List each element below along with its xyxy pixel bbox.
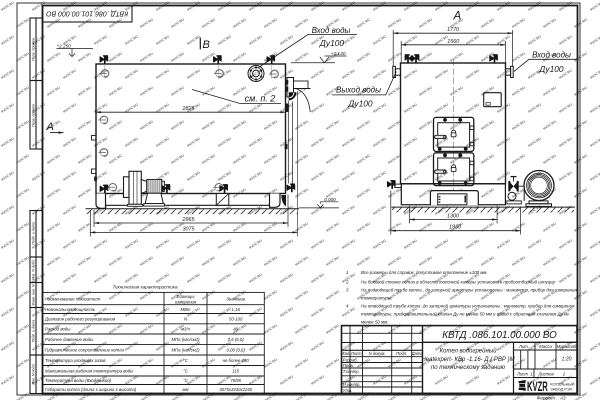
svg-text:КВТД .086.101.00.000 ВО: КВТД .086.101.00.000 ВО	[46, 10, 128, 19]
svg-text:по техническому заданию: по техническому заданию	[431, 365, 506, 371]
svg-text:1: 1	[530, 371, 532, 376]
svg-text:Подп.: Подп.	[396, 351, 407, 356]
svg-text:1930: 1930	[449, 225, 461, 231]
svg-text:70/95: 70/95	[230, 378, 241, 383]
svg-text:Ду100: Ду100	[319, 38, 344, 48]
svg-text:Листов: Листов	[537, 371, 554, 376]
svg-text:МВт: МВт	[180, 307, 190, 312]
svg-text:Формат: Формат	[537, 395, 555, 400]
svg-text:KVZR: KVZR	[527, 379, 548, 394]
svg-text:0,6 (6,0): 0,6 (6,0)	[228, 337, 245, 342]
svg-text:Дата: Дата	[411, 351, 424, 356]
svg-text:Лист: Лист	[516, 371, 528, 376]
svg-text:Пров.: Пров.	[343, 363, 354, 368]
svg-text:Расход воды: Расход воды	[45, 327, 71, 332]
svg-text:50-100: 50-100	[229, 316, 243, 321]
svg-text:2965: 2965	[182, 217, 196, 223]
svg-text:Ду100: Ду100	[347, 99, 372, 109]
svg-text:температуры.: температуры.	[361, 296, 392, 301]
svg-text:А: А	[46, 121, 54, 133]
svg-text:+2.130: +2.130	[331, 51, 346, 57]
svg-text:0.000: 0.000	[324, 197, 336, 202]
svg-text:КВТД .086.101.00.000 ВО: КВТД .086.101.00.000 ВО	[442, 330, 557, 341]
svg-text:На боковой стенке котла в обла: На боковой стенке котла в области топочн…	[361, 280, 556, 285]
svg-text:не более 250: не более 250	[223, 358, 250, 363]
svg-text:Утв.: Утв.	[343, 388, 353, 393]
svg-text:Масштаб: Масштаб	[557, 344, 577, 349]
svg-text:Heatexpert- КВр -1,16- Д ( РВР: Heatexpert- КВр -1,16- Д ( РВР )М	[421, 357, 514, 363]
svg-text:Все размеры для справок, допус: Все размеры для справок, допустимое откл…	[361, 270, 488, 275]
svg-text:менее 50 мм.: менее 50 мм.	[361, 320, 388, 325]
svg-text:измерения: измерения	[175, 299, 197, 304]
svg-text:3075х1930х2250: 3075х1930х2250	[219, 387, 253, 392]
svg-text:1560: 1560	[447, 39, 459, 45]
svg-text:А: А	[453, 11, 462, 23]
svg-text:см. п. 2: см. п. 2	[245, 93, 276, 103]
svg-text:1300: 1300	[447, 213, 459, 219]
svg-text:На отводящей трубе котла ,до з: На отводящей трубе котла ,до запорной ар…	[361, 304, 575, 309]
svg-text:МПа (кгс/см2): МПа (кгс/см2)	[171, 348, 200, 353]
svg-text:115: 115	[232, 369, 239, 374]
svg-text:Наименование показателя: Наименование показателя	[45, 296, 101, 301]
svg-text:Гидравлическое сопротивление к: Гидравлическое сопротивление котла	[45, 348, 125, 353]
svg-text:Т.контр.: Т.контр.	[343, 369, 360, 374]
svg-text:Техническая характеристика: Техническая характеристика	[112, 284, 177, 289]
svg-text:2: 2	[345, 280, 349, 285]
svg-text:Рабочее давление воды: Рабочее давление воды	[45, 337, 94, 342]
svg-text:Лист: Лист	[350, 351, 362, 356]
svg-text:Масса: Масса	[539, 344, 552, 349]
svg-text:Выход воды: Выход воды	[336, 86, 381, 95]
svg-text:Инв. N подл.: Инв. N подл.	[32, 363, 36, 384]
svg-text:3075: 3075	[183, 227, 196, 233]
svg-text:Диапазон рабочего регулировани: Диапазон рабочего регулирования	[44, 316, 116, 321]
svg-text:На подводящей трубе котла ,: На подводящей трубе котла , до запорной …	[361, 288, 577, 293]
svg-text:Взам. инв. N: Взам. инв. N	[32, 284, 36, 305]
svg-text:Инв. N дубл.: Инв. N дубл.	[32, 259, 36, 280]
svg-text:Вход воды: Вход воды	[312, 26, 351, 35]
svg-text:Перв. примен.: Перв. примен.	[32, 103, 36, 127]
svg-text:Вход воды: Вход воды	[532, 51, 571, 60]
svg-text:1,16: 1,16	[232, 307, 241, 312]
svg-text:0,06 (0,6): 0,06 (0,6)	[226, 348, 245, 353]
svg-text:Температура воды (Вход/выход): Температура воды (Вход/выход)	[45, 378, 112, 383]
svg-text:Габариты котла (длина х ширина: Габариты котла (длина х ширина х высота)	[45, 387, 137, 392]
svg-text:Перв. примен.: Перв. примен.	[32, 37, 36, 61]
svg-text:1770: 1770	[447, 27, 459, 33]
svg-text:А3: А3	[559, 395, 566, 400]
svg-text:Лит.: Лит.	[518, 344, 529, 349]
svg-text:м3/ч: м3/ч	[181, 327, 191, 332]
svg-text:N докум.: N докум.	[369, 351, 386, 356]
svg-text:МПа (кгс/см2): МПа (кгс/см2)	[171, 337, 200, 342]
svg-text:Номинальная мощность: Номинальная мощность	[45, 307, 96, 312]
svg-text:Подп. и дата: Подп. и дата	[32, 222, 36, 245]
svg-text:ЗАВОД РЭП: ЗАВОД РЭП	[550, 387, 572, 391]
svg-text:мм: мм	[183, 387, 189, 392]
svg-text:Подп. и дата: Подп. и дата	[32, 320, 36, 343]
svg-text:Разраб.: Разраб.	[343, 358, 358, 363]
svg-text:КОТЕЛЬНЫЙ: КОТЕЛЬНЫЙ	[550, 382, 575, 386]
svg-text:температуры, предохранительный: температуры, предохранительный клапан Ду…	[361, 312, 570, 317]
svg-text:Котел водогрейный: Котел водогрейный	[439, 347, 497, 354]
svg-text:Изм.: Изм.	[341, 351, 350, 356]
svg-text:Температура уходящих газов: Температура уходящих газов	[45, 358, 106, 363]
svg-text:Единицы: Единицы	[176, 294, 195, 299]
svg-text:Значение: Значение	[226, 296, 245, 301]
svg-text:40: 40	[233, 327, 238, 332]
svg-text:Максимальная рабочая температу: Максимальная рабочая температура воды	[45, 369, 134, 374]
svg-text:1:20: 1:20	[561, 357, 571, 363]
svg-text:В: В	[203, 39, 210, 51]
svg-text:2825: 2825	[182, 106, 196, 112]
svg-text:+2.250: +2.250	[57, 43, 72, 48]
svg-text:%: %	[184, 316, 188, 321]
svg-text:Н.контр.: Н.контр.	[343, 382, 361, 387]
svg-text:Ду100: Ду100	[538, 64, 563, 74]
